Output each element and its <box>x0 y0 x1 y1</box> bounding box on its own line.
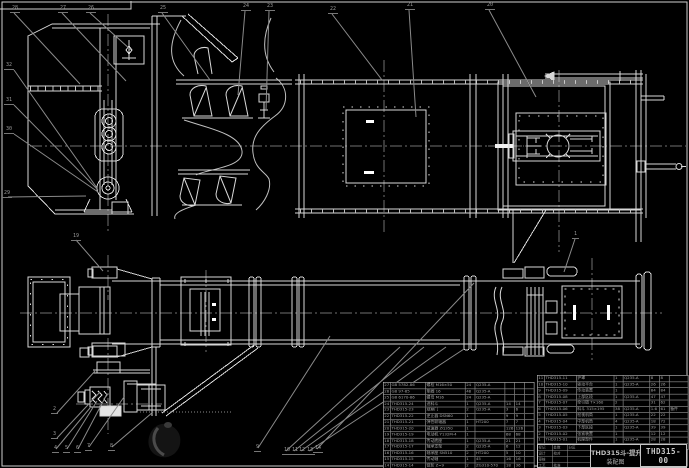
table-cell: 张紧装置 <box>577 431 615 437</box>
table-row: 14THD315-14链轮 Z=92ZG310-5701836 <box>384 463 534 468</box>
table-cell <box>568 457 590 463</box>
callout-label: 5 <box>63 446 70 453</box>
table-cell: GB 97-85 <box>391 389 426 395</box>
table-cell: 处数 <box>553 445 568 451</box>
callout-label: 20 <box>485 3 495 10</box>
table-cell: 6 <box>515 407 525 413</box>
table-cell: 15 <box>384 457 391 463</box>
table-cell: 14 <box>515 401 525 407</box>
table-cell: 轴承支架 <box>426 444 466 450</box>
table-cell: 设计 <box>538 451 553 457</box>
table-cell <box>670 437 688 443</box>
table-cell: 电动机 Y132M-4 <box>426 432 466 438</box>
table-cell: 校对 <box>553 451 568 457</box>
table-cell <box>623 388 650 394</box>
table-cell <box>505 383 515 389</box>
table-cell: 螺母 M16 <box>426 395 466 401</box>
table-cell: 10 <box>515 451 525 457</box>
table-cell: Q235-A <box>475 438 505 444</box>
table-cell: 16 <box>515 457 525 463</box>
table-cell: 9 <box>538 388 545 394</box>
table-cell: 检视机筒 <box>577 413 615 419</box>
table-cell: 36 <box>515 463 525 468</box>
table-cell: THD315-19 <box>391 432 426 438</box>
table-cell: 1 <box>466 426 476 432</box>
table-cell: 28 <box>660 437 670 443</box>
table-cell: 2 <box>466 451 476 457</box>
table-cell <box>475 414 505 420</box>
table-cell: 1 <box>614 437 623 443</box>
title-block: 标记处数分区设计校对审核工艺批准 THD315斗-提升 装配图 THD315-0… <box>537 444 687 468</box>
table-cell: 68 <box>505 432 515 438</box>
table-cell: 39 <box>650 425 660 431</box>
table-cell: 传动装置 <box>577 388 615 394</box>
table-cell <box>475 432 505 438</box>
table-cell: Q235-A <box>623 419 650 425</box>
table-cell: 逆止器 DSN60 <box>426 414 466 420</box>
table-cell: THD315-09 <box>545 388 577 394</box>
table-cell: 6 <box>538 407 545 413</box>
table-cell: 22 <box>650 413 660 419</box>
table-cell <box>525 426 534 432</box>
product-subtitle: 装配图 <box>591 457 640 466</box>
callout-label: 28 <box>10 6 20 13</box>
table-cell: THD315-01 <box>545 437 577 443</box>
table-cell: 审核 <box>538 457 553 463</box>
revision-grid: 标记处数分区设计校对审核工艺批准 <box>538 445 591 467</box>
table-cell: 47 <box>650 394 660 400</box>
table-cell: GB 6170-86 <box>391 395 426 401</box>
table-cell: Q235-A <box>623 382 650 388</box>
callout-label: 19 <box>71 234 81 241</box>
table-cell <box>670 400 688 406</box>
table-cell: 1 <box>466 432 476 438</box>
table-cell: THD315-24 <box>391 401 426 407</box>
table-cell: 126 <box>515 426 525 432</box>
table-cell: 21 <box>505 438 515 444</box>
table-cell: 9 <box>505 414 515 420</box>
table-cell: 8 <box>650 376 660 382</box>
table-cell: 38 <box>614 407 623 413</box>
table-cell: Q235-A <box>475 383 505 389</box>
table-cell <box>525 438 534 444</box>
table-cell: 1 <box>614 413 623 419</box>
table-cell: 62 <box>660 400 670 406</box>
callout-label: 1 <box>572 232 579 239</box>
table-cell: 2 <box>614 400 623 406</box>
table-cell <box>525 420 534 426</box>
table-cell: 14 <box>384 463 391 468</box>
table-cell: 7 <box>505 420 515 426</box>
table-cell <box>525 444 534 450</box>
table-cell: THD315-08 <box>545 394 577 400</box>
table-cell <box>670 394 688 400</box>
table-cell: 48 <box>466 389 476 395</box>
table-cell: 6 <box>505 444 515 450</box>
table-cell <box>505 389 515 395</box>
table-cell: Q235-A <box>623 376 650 382</box>
table-cell: THD315-03 <box>545 425 577 431</box>
table-cell: 1.6 <box>650 407 660 413</box>
table-cell: 8 <box>660 376 670 382</box>
table-cell: 8 <box>538 394 545 400</box>
drawing-number: THD315-00 <box>641 447 686 467</box>
table-cell: 126 <box>505 426 515 432</box>
callout-label: 29 <box>2 191 12 198</box>
table-cell: 26 <box>650 382 660 388</box>
table-cell: 61 <box>660 407 670 413</box>
table-cell: 备件 <box>670 407 688 413</box>
table-cell: 26 <box>384 389 391 395</box>
table-cell: Q235-A <box>623 394 650 400</box>
table-cell <box>525 414 534 420</box>
table-cell <box>525 463 534 468</box>
callout-label: 4 <box>52 446 59 453</box>
table-cell: 24 <box>384 401 391 407</box>
table-cell <box>475 426 505 432</box>
table-cell: Q235-A <box>475 407 505 413</box>
table-cell <box>670 388 688 394</box>
callout-label: 6 <box>74 446 81 453</box>
table-cell: 弹性联轴器 <box>426 420 466 426</box>
table-cell: 22 <box>660 413 670 419</box>
title-cell: THD315斗-提升 装配图 <box>591 445 641 467</box>
table-cell: 工艺 <box>538 463 553 467</box>
table-cell: 7 <box>538 400 545 406</box>
table-cell: 16 <box>505 457 515 463</box>
table-cell: Q235-A <box>623 413 650 419</box>
table-cell: 2 <box>466 407 476 413</box>
table-cell: 2 <box>466 463 476 468</box>
table-cell: 21 <box>515 438 525 444</box>
table-cell: THD315-15 <box>391 457 426 463</box>
table-cell <box>670 413 688 419</box>
table-cell: 螺栓 M16×50 <box>426 383 466 389</box>
table-cell: 68 <box>515 432 525 438</box>
table-cell <box>568 463 590 467</box>
table-cell: 进料斗 <box>426 401 466 407</box>
table-cell <box>525 383 534 389</box>
table-cell: 上部区段 <box>577 394 615 400</box>
table-cell: 19 <box>384 432 391 438</box>
table-cell: 12 <box>660 431 670 437</box>
table-cell: 72 <box>660 419 670 425</box>
table-cell: 1 <box>466 457 476 463</box>
table-cell <box>670 376 688 382</box>
table-cell: 20 <box>384 426 391 432</box>
table-cell: HT200 <box>475 451 505 457</box>
table-cell <box>525 395 534 401</box>
table-cell: THD315-22 <box>391 414 426 420</box>
table-cell <box>515 383 525 389</box>
table-cell: Q235-A <box>623 425 650 431</box>
table-cell: 分区 <box>568 445 590 451</box>
table-cell: 2 <box>538 431 545 437</box>
table-cell: 18 <box>650 419 660 425</box>
table-cell <box>525 457 534 463</box>
table-cell: 1 <box>466 414 476 420</box>
callout-label: 23 <box>265 4 275 11</box>
bom-table-right: 11THD315-11护罩1Q235-A8810THD315-10驱动平台1Q2… <box>537 375 688 450</box>
table-cell: 27 <box>384 383 391 389</box>
table-cell: 10 <box>538 382 545 388</box>
table-cell: 观察门 <box>426 407 466 413</box>
table-cell: 84 <box>650 388 660 394</box>
callout-label: 21 <box>405 3 415 10</box>
table-cell <box>623 431 650 437</box>
table-cell: 4 <box>614 419 623 425</box>
table-cell: 1 <box>466 401 476 407</box>
table-cell <box>515 395 525 401</box>
table-cell: 12 <box>515 444 525 450</box>
table-cell: 1 <box>614 388 623 394</box>
table-cell: 24 <box>466 383 476 389</box>
table-cell: THD315-17 <box>391 444 426 450</box>
table-cell: Q235-A <box>475 401 505 407</box>
table-cell: 1 <box>466 438 476 444</box>
table-cell: 24 <box>466 395 476 401</box>
product-title: THD315斗-提升 <box>591 447 640 457</box>
table-cell: THD315-04 <box>545 419 577 425</box>
table-cell: 减速器 ZQ350 <box>426 426 466 432</box>
table-cell: 标记 <box>538 445 553 451</box>
callout-label: 25 <box>158 6 168 13</box>
table-cell <box>525 401 534 407</box>
table-cell: 护罩 <box>577 376 615 382</box>
callout-label: 26 <box>86 6 96 13</box>
table-cell: 1 <box>614 431 623 437</box>
table-cell: 17 <box>384 444 391 450</box>
table-cell <box>553 457 568 463</box>
table-cell: 料斗 315×195 <box>577 407 615 413</box>
table-cell: 28 <box>650 437 660 443</box>
table-cell: 1 <box>466 420 476 426</box>
table-cell: THD315-18 <box>391 438 426 444</box>
table-cell <box>670 419 688 425</box>
table-cell: 3 <box>505 407 515 413</box>
table-cell: HT200 <box>475 420 505 426</box>
table-cell <box>525 432 534 438</box>
table-cell: 23 <box>384 407 391 413</box>
callout-label: 32 <box>4 63 14 70</box>
table-cell: 链轮 Z=9 <box>426 463 466 468</box>
table-cell: 47 <box>660 394 670 400</box>
table-cell: 5 <box>505 451 515 457</box>
table-cell <box>505 395 515 401</box>
table-cell: 下部区段 <box>577 425 615 431</box>
table-cell: 机座部件 <box>577 437 615 443</box>
drawing-number-cell: THD315-00 共1张 第1张 <box>641 445 686 467</box>
bom-table-left: 27GB 5782-86螺栓 M16×5024Q235-A26GB 97-85垫… <box>383 382 534 468</box>
table-cell: 4 <box>538 419 545 425</box>
table-cell: 中部机筒 <box>577 419 615 425</box>
callout-label: 7 <box>85 444 92 451</box>
table-cell: 12 <box>650 431 660 437</box>
table-cell: THD315-23 <box>391 407 426 413</box>
table-cell: 传动底座 <box>426 438 466 444</box>
table-cell: 25 <box>384 395 391 401</box>
table-cell: GB 5782-86 <box>391 383 426 389</box>
table-cell: Q235-A <box>623 437 650 443</box>
callout-label: 9 <box>254 445 261 452</box>
table-cell: 1 <box>614 382 623 388</box>
table-cell: 传动轴 <box>426 457 466 463</box>
table-cell: 垫圈 16 <box>426 389 466 395</box>
table-cell: 18 <box>384 438 391 444</box>
table-cell: 16 <box>384 451 391 457</box>
table-cell: 5 <box>538 413 545 419</box>
table-cell: Q235-A <box>475 389 505 395</box>
table-cell: 84 <box>660 388 670 394</box>
table-cell: 9 <box>515 414 525 420</box>
table-cell: 1 <box>614 425 623 431</box>
table-cell: THD315-06 <box>545 407 577 413</box>
table-cell: 轴承座 SN510 <box>426 451 466 457</box>
table-cell: 牵引链 T×160 <box>577 400 615 406</box>
table-cell: THD315-14 <box>391 463 426 468</box>
table-cell: THD315-16 <box>391 451 426 457</box>
table-cell: 21 <box>384 420 391 426</box>
table-cell: 1 <box>538 437 545 443</box>
table-cell: 2 <box>466 444 476 450</box>
table-cell <box>670 425 688 431</box>
table-cell: THD315-20 <box>391 426 426 432</box>
drawing-sheet: 2827262524232221203231302919123456789101… <box>0 0 689 468</box>
table-cell: THD315-21 <box>391 420 426 426</box>
table-cell <box>525 451 534 457</box>
table-cell: Q235-A <box>475 395 505 401</box>
table-cell <box>670 382 688 388</box>
table-cell: 14 <box>505 401 515 407</box>
callout-label: 31 <box>4 98 14 105</box>
table-cell: 26 <box>660 382 670 388</box>
table-cell <box>525 389 534 395</box>
callout-label: 30 <box>4 127 14 134</box>
table-cell <box>525 407 534 413</box>
table-cell: 驱动平台 <box>577 382 615 388</box>
callout-label: 27 <box>58 6 68 13</box>
table-cell: THD315-11 <box>545 376 577 382</box>
table-cell: 22 <box>384 414 391 420</box>
table-cell: ZG310-570 <box>475 463 505 468</box>
callout-label: 3 <box>51 432 58 439</box>
table-cell: 31 <box>650 400 660 406</box>
table-cell: THD315-07 <box>545 400 577 406</box>
table-cell: Q235-A <box>475 444 505 450</box>
table-cell: THD315-05 <box>545 413 577 419</box>
table-cell: THD315-02 <box>545 431 577 437</box>
table-cell: 39 <box>660 425 670 431</box>
table-cell <box>670 431 688 437</box>
table-cell <box>515 389 525 395</box>
callout-label: 24 <box>241 4 251 11</box>
table-cell: 1 <box>614 376 623 382</box>
callout-label: 8 <box>108 444 115 451</box>
table-cell <box>623 400 650 406</box>
table-cell: 11 <box>538 376 545 382</box>
table-cell: 3 <box>538 425 545 431</box>
callout-label: 14 <box>313 446 323 453</box>
table-row: 工艺批准 <box>538 463 590 467</box>
table-cell <box>568 451 590 457</box>
table-cell: Q235-A <box>623 407 650 413</box>
table-cell: 45 <box>475 457 505 463</box>
callout-label: 2 <box>51 407 58 414</box>
table-cell: 1 <box>614 394 623 400</box>
callout-label: 22 <box>328 7 338 14</box>
table-cell: 18 <box>505 463 515 468</box>
table-cell: 批准 <box>553 463 568 467</box>
table-cell: 7 <box>515 420 525 426</box>
table-cell: THD315-10 <box>545 382 577 388</box>
